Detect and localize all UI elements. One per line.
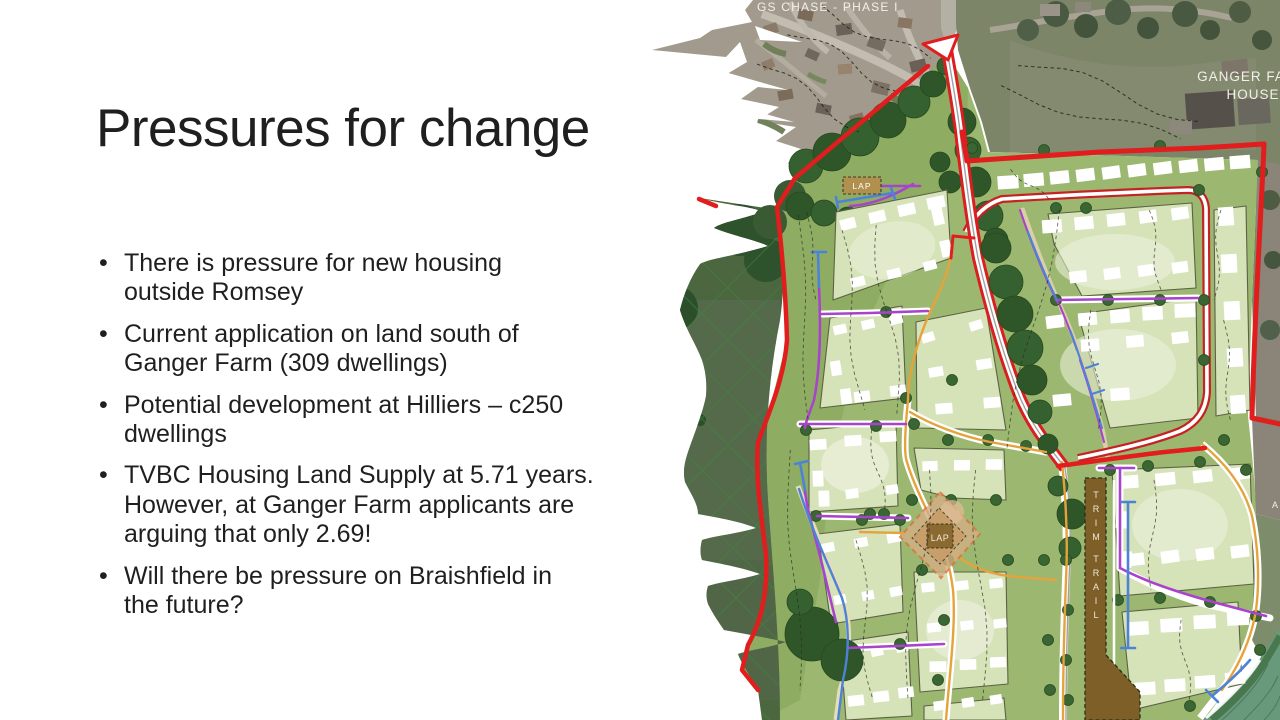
svg-text:R: R [1093,568,1100,578]
svg-text:I: I [1095,518,1098,528]
svg-text:R: R [1093,504,1100,514]
svg-text:M: M [1092,532,1100,542]
svg-text:HOUSE: HOUSE [1226,87,1279,102]
svg-text:LAP: LAP [852,181,871,191]
svg-text:A: A [1093,582,1099,592]
svg-text:LAP: LAP [931,533,950,543]
svg-text:L: L [1093,610,1098,620]
svg-text:T: T [1093,490,1099,500]
svg-text:T: T [1093,554,1099,564]
svg-text:GANGER FA: GANGER FA [1197,69,1280,84]
svg-text:I: I [1095,596,1098,606]
svg-text:GS CHASE - PHASE I: GS CHASE - PHASE I [757,0,899,14]
svg-text:A: A [1272,500,1278,510]
